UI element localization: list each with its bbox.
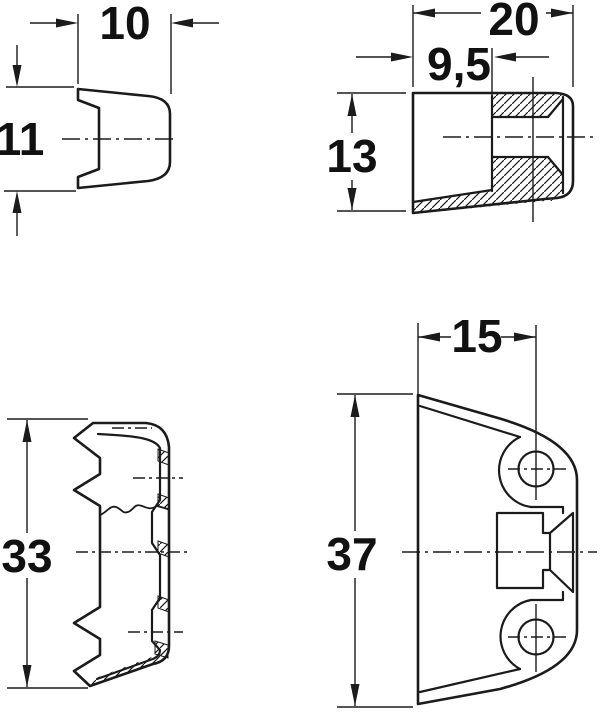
arrowhead <box>413 9 435 18</box>
dim-label-9-5: 9,5 <box>427 38 491 90</box>
dim-label-10: 10 <box>99 0 150 49</box>
arrowhead <box>348 188 357 210</box>
dim-label-33: 33 <box>1 530 52 582</box>
view-toothed-strip: 33 <box>1 419 188 688</box>
dimension-33: 33 <box>1 419 88 688</box>
view-sleeve-section: 20 9,5 13 <box>326 0 598 222</box>
slot-outline <box>497 507 573 600</box>
dim-label-15: 15 <box>451 310 502 362</box>
arrowhead <box>13 191 22 213</box>
arrowhead <box>418 333 440 342</box>
arrowhead <box>23 420 32 442</box>
dimension-10: 10 <box>30 0 219 94</box>
inner-wall-line <box>97 455 160 679</box>
arrowhead <box>171 19 193 28</box>
chamfer-patch <box>158 596 169 612</box>
dimension-13: 13 <box>326 93 406 211</box>
boss-arc-bottom <box>501 600 531 669</box>
dim-label-20: 20 <box>488 0 539 45</box>
arrowhead <box>514 333 536 342</box>
view-plate-elevation: 15 37 <box>326 310 597 707</box>
dim-label-11: 11 <box>0 113 44 165</box>
view-cap-profile: 10 11 <box>0 0 219 236</box>
dimension-15: 15 <box>418 310 536 404</box>
arrowhead <box>551 9 573 18</box>
arrowhead <box>348 94 357 116</box>
inner-top-line <box>98 434 160 455</box>
dim-label-13: 13 <box>326 130 377 182</box>
arrowhead <box>56 19 78 28</box>
arrowhead <box>351 395 360 417</box>
arrowhead <box>13 65 22 87</box>
arrowhead <box>494 53 516 62</box>
technical-drawing: 10 11 20 <box>0 0 600 712</box>
dimension-11: 11 <box>0 45 76 236</box>
dimension-9-5: 9,5 <box>356 38 549 96</box>
break-line <box>100 505 168 515</box>
arrowhead <box>391 53 413 62</box>
drawing-canvas: 10 11 20 <box>0 0 600 712</box>
dimension-37: 37 <box>326 394 413 707</box>
dim-label-37: 37 <box>326 528 377 580</box>
boss-arc-top <box>499 437 531 507</box>
arrowhead <box>23 665 32 687</box>
arrowhead <box>351 684 360 706</box>
